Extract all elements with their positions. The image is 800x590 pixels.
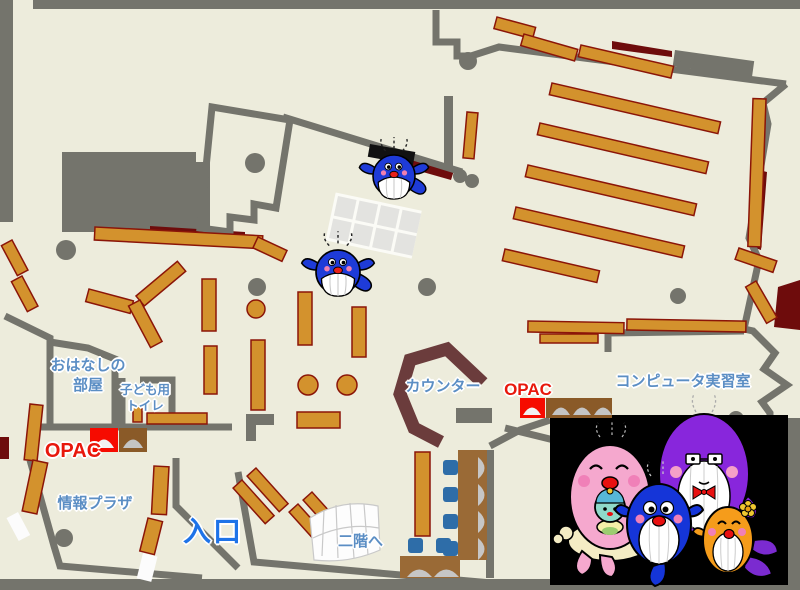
label-opac-children: OPAC [38, 438, 108, 464]
label-opac-main: OPAC [498, 379, 558, 401]
label-entrance: 入口 [168, 514, 258, 550]
label-counter: カウンター [393, 377, 493, 397]
label-to-second-floor: 二階へ [318, 532, 403, 552]
library-floor-map: おはなしの 部屋 子ども用 トイレ OPAC 情報プラザ 入口 カウンター OP… [0, 0, 800, 590]
label-kids-toilet: 子ども用 トイレ [105, 382, 185, 415]
label-info-plaza: 情報プラザ [40, 494, 150, 514]
label-computer-room: コンピュータ実習室 [598, 372, 768, 392]
